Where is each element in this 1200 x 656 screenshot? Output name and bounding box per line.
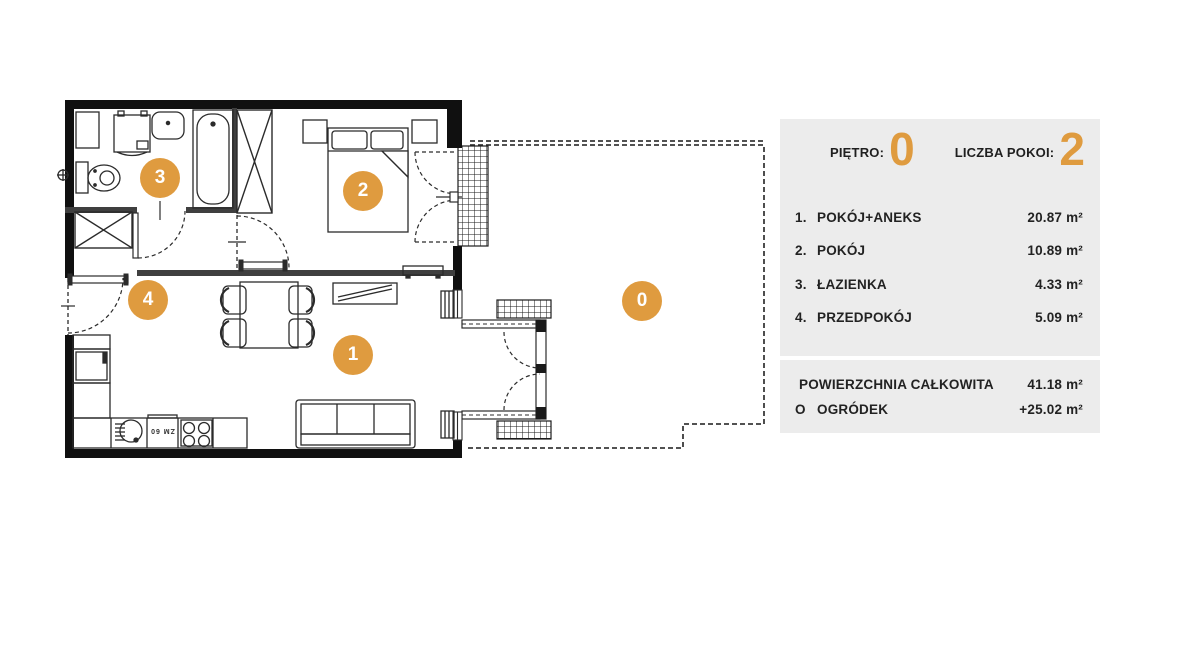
total-name: POWIERZCHNIA CAŁKOWITA (799, 377, 1027, 392)
garden-boundary (468, 141, 764, 448)
entrance-door (61, 274, 128, 335)
closet-bedroom (237, 110, 272, 213)
totals-panel: POWIERZCHNIA CAŁKOWITA 41.18 m² O OGRÓDE… (780, 360, 1100, 433)
room-number: 2. (795, 243, 817, 258)
room-marker-2: 2 (343, 171, 383, 211)
dining-set (221, 282, 314, 348)
room-number: 1. (795, 210, 817, 225)
room-area: 5.09 m² (1035, 310, 1083, 325)
room-area: 20.87 m² (1027, 210, 1083, 225)
total-name: OGRÓDEK (817, 402, 1019, 417)
rooms-count-stat: LICZBA POKOI: 2 (955, 135, 1085, 170)
floor-plan-page: 1 2 3 4 0 ZM 60 PIĘTRO: 0 LICZBA POKOI: … (0, 0, 1200, 656)
dishwasher-label: ZM 60 (147, 427, 178, 434)
info-panel: PIĘTRO: 0 LICZBA POKOI: 2 1. POKÓJ+ANEKS… (780, 119, 1100, 356)
room-list: 1. POKÓJ+ANEKS 20.87 m² 2. POKÓJ 10.89 m… (780, 170, 1100, 334)
total-area: 41.18 m² (1027, 377, 1083, 392)
total-area: +25.02 m² (1019, 402, 1083, 417)
floor-label: PIĘTRO: (830, 145, 884, 160)
room-number: 3. (795, 277, 817, 292)
panel-header: PIĘTRO: 0 LICZBA POKOI: 2 (780, 119, 1100, 170)
room-area: 10.89 m² (1027, 243, 1083, 258)
room-marker-4: 4 (128, 280, 168, 320)
bathroom-door (133, 201, 185, 258)
room-marker-1: 1 (333, 335, 373, 375)
rooms-count-value: 2 (1059, 129, 1085, 170)
floor-stat: PIĘTRO: 0 (830, 135, 915, 170)
room-name: POKÓJ (817, 243, 1027, 258)
living-furniture (296, 266, 454, 448)
room-list-item: 3. ŁAZIENKA 4.33 m² (795, 267, 1083, 301)
room-number: 4. (795, 310, 817, 325)
totals-item: POWIERZCHNIA CAŁKOWITA 41.18 m² (795, 372, 1083, 397)
floor-value: 0 (889, 129, 915, 170)
room-list-item: 2. POKÓJ 10.89 m² (795, 234, 1083, 268)
wardrobe-hall (75, 212, 132, 248)
total-marker: O (795, 402, 817, 417)
porch (462, 320, 546, 419)
rooms-count-label: LICZBA POKOI: (955, 145, 1055, 160)
room-list-item: 4. PRZEDPOKÓJ 5.09 m² (795, 301, 1083, 335)
totals-list: POWIERZCHNIA CAŁKOWITA 41.18 m² O OGRÓDE… (780, 360, 1100, 422)
interior-walls (65, 108, 455, 276)
bedroom-french-door (415, 152, 462, 242)
room-area: 4.33 m² (1035, 277, 1083, 292)
room-name: PRZEDPOKÓJ (817, 310, 1035, 325)
bedroom-inner-door (228, 215, 289, 271)
bathroom-fixtures (57, 110, 233, 208)
room-name: POKÓJ+ANEKS (817, 210, 1027, 225)
room-list-item: 1. POKÓJ+ANEKS 20.87 m² (795, 200, 1083, 234)
room-marker-3: 3 (140, 158, 180, 198)
garden-marker-0: 0 (622, 281, 662, 321)
totals-item: O OGRÓDEK +25.02 m² (795, 397, 1083, 422)
room-name: ŁAZIENKA (817, 277, 1035, 292)
